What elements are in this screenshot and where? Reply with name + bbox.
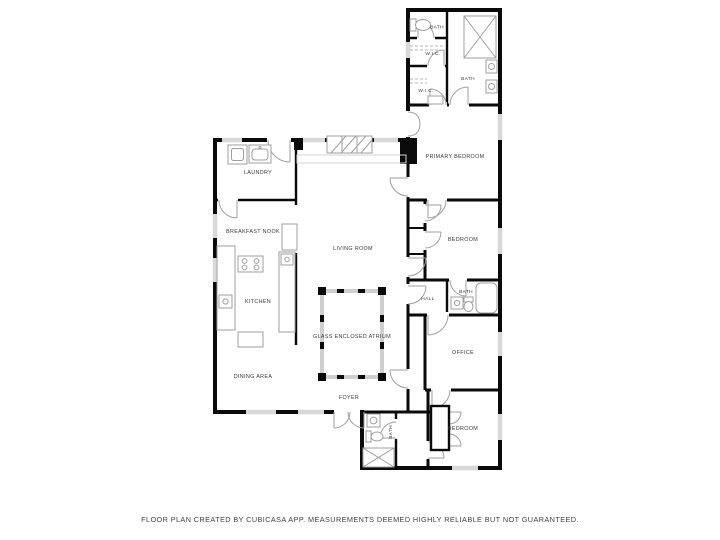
room-label-bedroom-middle: BEDROOM — [448, 237, 478, 243]
stove-symbol — [238, 256, 263, 272]
room-label-primary-bedroom: PRIMARY BEDROOM — [426, 154, 485, 160]
window — [246, 410, 276, 415]
washer-symbol — [228, 145, 247, 164]
kitchen-counters — [217, 224, 297, 347]
laundry-sink-symbol — [249, 145, 271, 163]
window — [222, 138, 242, 143]
window — [374, 138, 398, 143]
room-label-kitchen: KITCHEN — [245, 299, 271, 305]
closet-box — [431, 406, 449, 450]
room-label-wic-upper: W.I.C. — [425, 51, 440, 57]
window — [303, 138, 325, 143]
footer-caption: FLOOR PLAN CREATED BY CUBICASA APP. MEAS… — [141, 515, 579, 524]
room-label-primary-bath: BATH — [461, 76, 475, 82]
sink-symbol — [367, 414, 380, 427]
room-label-hall: HALL — [421, 296, 434, 302]
sink-symbol — [486, 60, 497, 73]
fridge-symbol — [282, 224, 297, 250]
window — [298, 410, 324, 415]
sink-symbol — [451, 297, 463, 309]
room-label-wic-lower: W.I.C. — [418, 88, 433, 94]
room-label-office: OFFICE — [452, 350, 474, 356]
cabinet-symbol — [428, 96, 443, 104]
toilet-symbol — [366, 431, 383, 442]
sink-symbol — [219, 295, 232, 308]
window — [498, 228, 503, 254]
room-label-hall-bath: BATH — [459, 289, 473, 295]
floor-plan-page: BATH W.I.C. W.I.C. BATH PRIMARY BEDROOM … — [0, 0, 720, 540]
room-label-dining-area: DINING AREA — [234, 374, 273, 380]
room-label-breakfast-nook: BREAKFAST NOOK — [226, 229, 280, 235]
doors — [219, 22, 468, 458]
window — [213, 214, 218, 238]
room-label-atrium: GLASS ENCLOSED ATRIUM — [313, 334, 391, 340]
room-label-foyer-bath: BATH — [388, 425, 394, 439]
closet-rail — [410, 46, 445, 50]
window — [498, 332, 503, 356]
closet-door — [449, 434, 461, 446]
fireplace-symbol — [327, 136, 372, 153]
bathtub-symbol — [476, 283, 497, 313]
room-label-bath-top: BATH — [430, 25, 444, 31]
floor-plan-drawing: BATH W.I.C. W.I.C. BATH PRIMARY BEDROOM … — [0, 0, 720, 540]
window — [498, 414, 503, 440]
window — [452, 466, 478, 471]
room-label-bedroom-bottom: BEDROOM — [448, 426, 478, 432]
shower-symbol — [363, 448, 394, 467]
sink-symbol — [486, 80, 497, 93]
sink-symbol — [281, 254, 293, 265]
closet-rail — [410, 79, 427, 83]
room-label-foyer: FOYER — [339, 395, 359, 401]
ceiling-beam — [297, 155, 406, 163]
window — [406, 42, 411, 58]
toilet-symbol — [410, 19, 431, 31]
entry-door-left — [334, 412, 350, 428]
room-label-laundry: LAUNDRY — [244, 170, 272, 176]
room-label-living-room: LIVING ROOM — [333, 246, 373, 252]
window — [498, 114, 503, 140]
closet-door — [449, 412, 461, 424]
shower-symbol — [464, 16, 496, 58]
toilet-symbol — [464, 297, 473, 312]
